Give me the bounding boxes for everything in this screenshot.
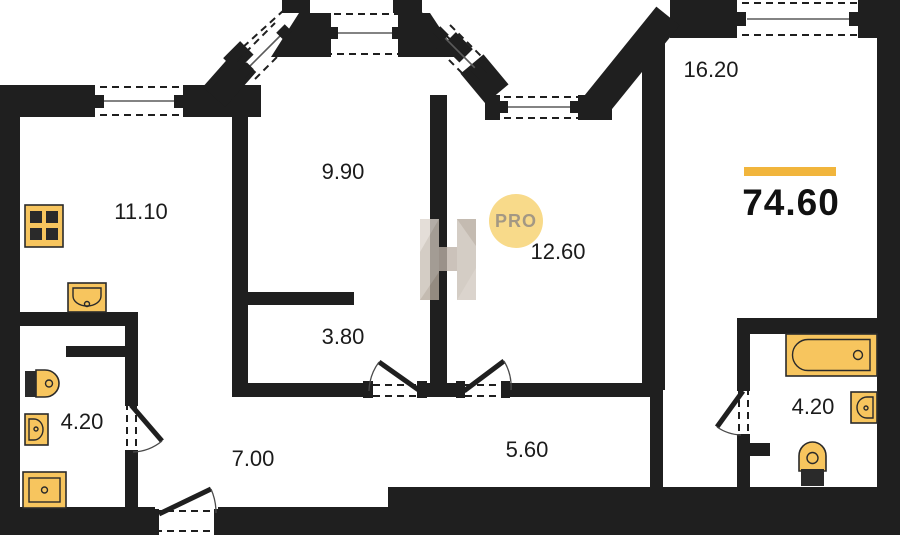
- room-area-label-bedroom: 12.60: [530, 239, 585, 265]
- room-area-label-hallway: 7.00: [232, 446, 275, 472]
- total-area-value: 74.60: [742, 182, 840, 224]
- room-area-label-wardrobe: 3.80: [322, 324, 365, 350]
- bathtub-icon: [786, 334, 877, 376]
- wardrobe-door: [363, 362, 427, 398]
- room-area-label-corridor: 5.60: [506, 437, 549, 463]
- floor-plan: 11.10 9.90 16.20 12.60 3.80 4.20 7.00 5.…: [0, 0, 900, 535]
- toilet-right-icon: [799, 442, 826, 486]
- toilet-left-icon: [25, 370, 59, 397]
- room-area-label-bedroom-large: 16.20: [683, 57, 738, 83]
- watermark-logo: [420, 219, 476, 300]
- bedroom-door: [456, 361, 511, 398]
- bathroom-right-door: [717, 384, 750, 441]
- pro-watermark-badge: PRO: [489, 194, 543, 248]
- stove-icon: [25, 205, 63, 247]
- bedroom-window: [492, 95, 586, 120]
- bedroom-large-window: [730, 0, 866, 38]
- washbasin-right-icon: [851, 392, 877, 423]
- room-area-label-bathroom-left: 4.20: [61, 409, 104, 435]
- kitchen-window: [88, 85, 190, 117]
- shower-tray-icon: [23, 472, 66, 508]
- room-area-label-kitchen: 11.10: [114, 199, 167, 225]
- washbasin-left-icon: [25, 414, 48, 445]
- room-area-label-bathroom-right: 4.20: [792, 394, 835, 420]
- room-area-label-living-room: 9.90: [322, 159, 365, 185]
- total-area-accent-bar: [744, 167, 836, 176]
- entrance-door: [152, 489, 221, 535]
- floor-plan-drawing: [0, 0, 900, 535]
- kitchen-sink-icon: [68, 283, 106, 312]
- bathroom-left-door: [125, 399, 162, 457]
